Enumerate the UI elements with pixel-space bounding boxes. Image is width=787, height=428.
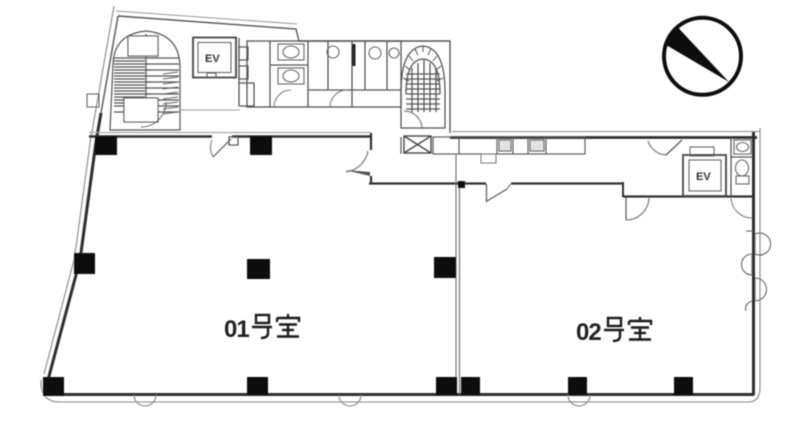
svg-text:02: 02 — [576, 319, 601, 346]
svg-text:01: 01 — [224, 316, 249, 343]
svg-text:EV: EV — [205, 53, 220, 65]
svg-text:EV: EV — [696, 171, 711, 183]
